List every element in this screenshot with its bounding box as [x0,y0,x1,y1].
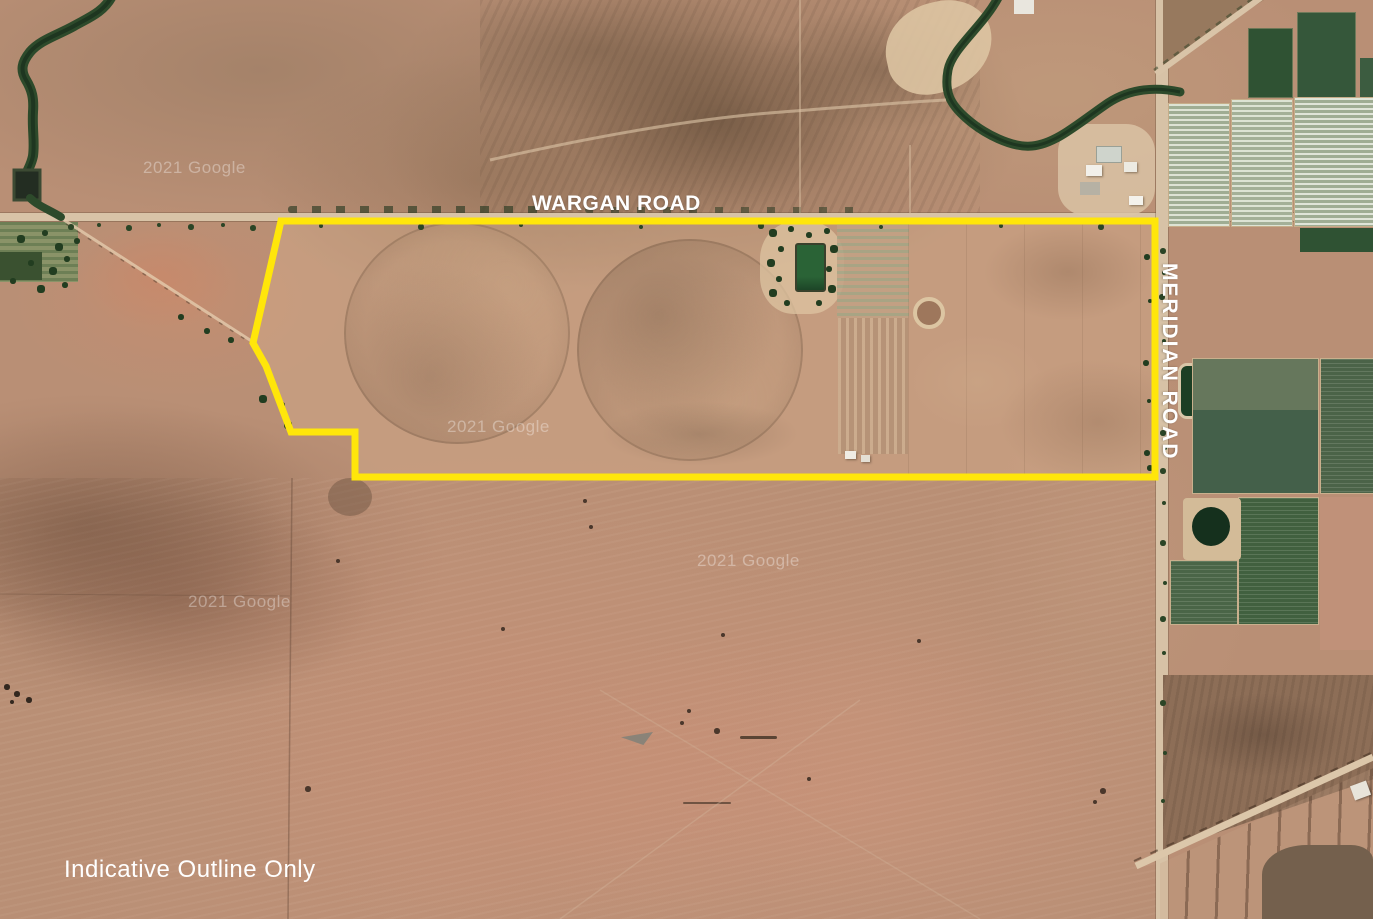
farmstead-ne-shed-2 [1124,162,1137,172]
row-crop-block-horizontal [837,222,909,318]
farmstead-ne-shed-gray [1080,182,1100,195]
shed-top-edge [1014,0,1034,14]
vineyard-block-1 [1192,358,1319,494]
farm-shed-small-1 [845,451,856,459]
pink-field-east [1320,497,1373,650]
stock-yard-circle [913,297,945,329]
farm-dam-green [795,243,826,292]
satellite-map: WARGAN ROAD MERIDIAN ROAD Indicative Out… [0,0,1373,919]
pink-field-west [78,222,258,344]
scrub-patch-below-step [328,478,372,516]
vineyard-block-3 [1238,497,1319,625]
green-block-ne-1 [1248,28,1293,98]
farmstead-ne-dam [1096,146,1122,163]
farmstead-ne-shed-3 [1129,196,1143,205]
green-block-ne-3 [1360,58,1373,98]
road-label-meridian: MERIDIAN ROAD [1157,263,1181,461]
paddock-dash-mark-1 [740,736,777,739]
dark-blob-bottom-right [1262,845,1373,919]
road-label-wargan: WARGAN ROAD [532,192,701,216]
sage-field-2 [1231,99,1293,227]
wargan-roadside-trees-west [288,206,543,213]
scrub-patch-below-pivots [560,388,840,480]
pivot-circle-west [344,222,570,444]
dam-round-pond [1192,507,1230,546]
green-strip-west-edge [0,252,42,280]
south-paddock-texture [0,478,1160,919]
sage-field-1 [1168,103,1230,227]
green-block-ne-2 [1297,12,1356,98]
google-watermark-3: 2021 Google [697,551,800,571]
vineyard-block-2 [1320,358,1373,494]
row-crop-block-vertical [838,318,908,454]
farmstead-ne-shed-1 [1086,165,1102,176]
sage-field-3 [1294,97,1373,227]
google-watermark-2: 2021 Google [447,417,550,437]
paddock-dash-mark-2 [683,802,731,804]
cultivated-block-east-mottle [908,222,1153,475]
vineyard-block-4 [1170,560,1238,625]
google-watermark-4: 2021 Google [188,592,291,612]
google-watermark-1: 2021 Google [143,158,246,178]
green-strip-east [1300,228,1373,252]
farm-shed-small-2 [861,455,870,462]
scrub-specks-south [0,0,2,2]
disclaimer-text: Indicative Outline Only [64,856,316,884]
